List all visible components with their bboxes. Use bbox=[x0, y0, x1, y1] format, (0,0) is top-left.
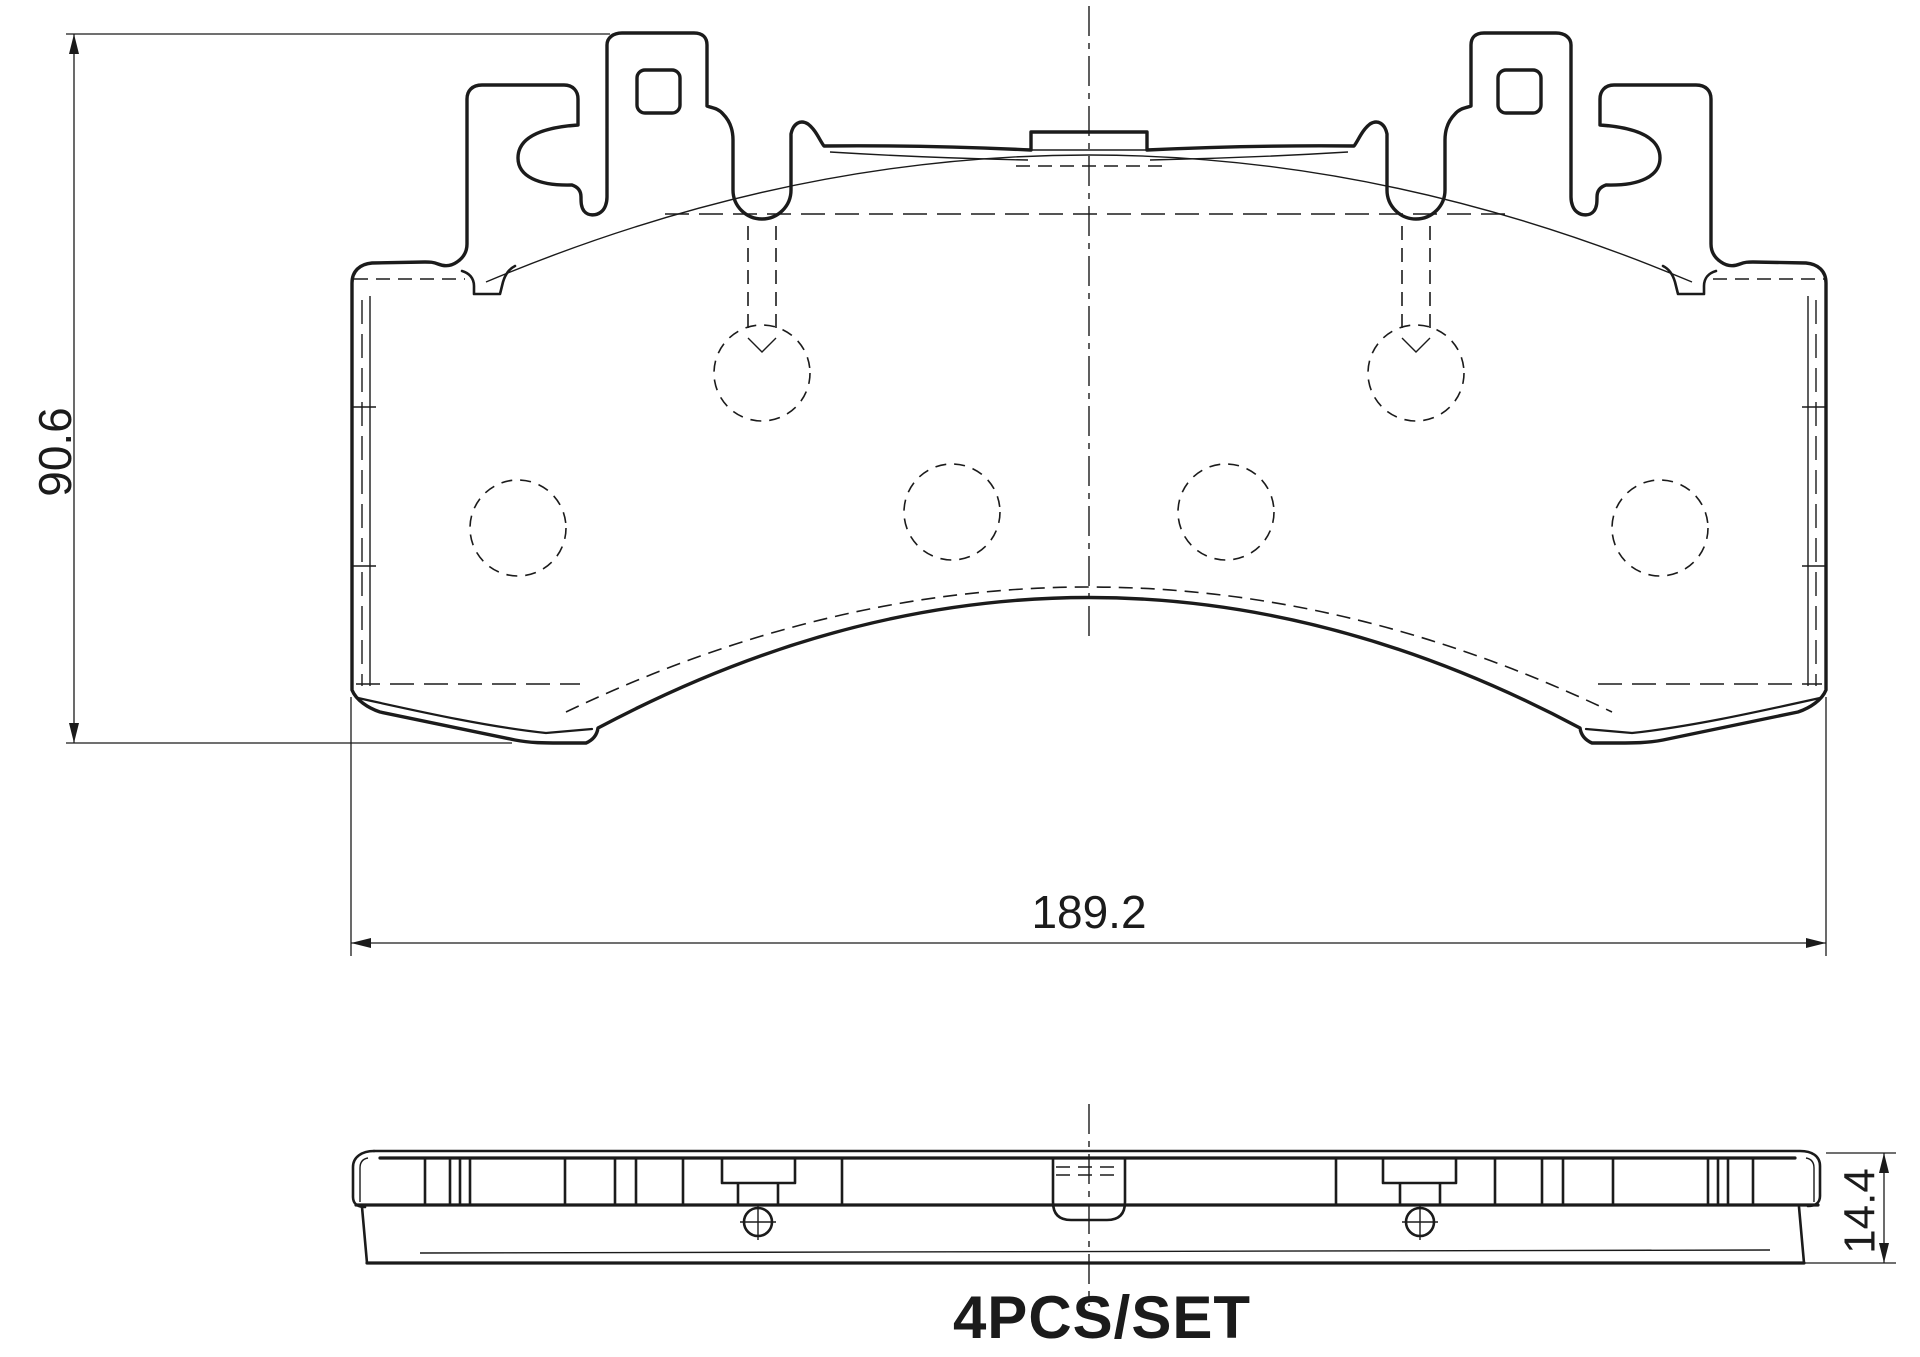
hole-outer-left bbox=[470, 480, 566, 576]
rivet-pin-right bbox=[1402, 226, 1430, 336]
hole-inner-right bbox=[1178, 464, 1274, 560]
hook-lug-left bbox=[462, 266, 515, 294]
rivet-chevron-right bbox=[1402, 338, 1430, 352]
height-arrow-top bbox=[69, 34, 79, 54]
rivet-chevron-left bbox=[748, 338, 776, 352]
left-edge-inner-line bbox=[352, 296, 376, 686]
chamfer-arc-left bbox=[830, 152, 1028, 160]
square-hole-left bbox=[637, 70, 680, 113]
dimension-width: 189.2 bbox=[351, 697, 1826, 956]
right-edge-inner-line bbox=[1802, 296, 1826, 686]
width-arrow-left bbox=[351, 938, 371, 948]
set-quantity-label: 4PCS/SET bbox=[953, 1284, 1251, 1351]
dimension-thickness: 14.4 bbox=[1798, 1153, 1896, 1263]
bv-curl-inner-left bbox=[360, 1158, 368, 1202]
pad-outline bbox=[352, 33, 1826, 743]
dimension-height: 90.6 bbox=[29, 34, 610, 743]
technical-drawing: 90.6 189.2 14.4 4PCS/SET bbox=[0, 0, 1920, 1357]
width-dimension-label: 189.2 bbox=[1031, 886, 1146, 938]
rivet-hole-left bbox=[714, 325, 810, 421]
hole-outer-right bbox=[1612, 480, 1708, 576]
hidden-bottom-arc bbox=[566, 587, 1612, 712]
bottom-view bbox=[353, 1151, 1820, 1263]
bv-slot-right bbox=[1383, 1158, 1456, 1205]
height-arrow-bottom bbox=[69, 723, 79, 743]
bv-rivet-left-cross bbox=[740, 1204, 776, 1240]
bv-friction-side-right bbox=[1799, 1207, 1804, 1263]
bv-friction-side-left bbox=[362, 1207, 367, 1263]
height-dimension-label: 90.6 bbox=[29, 407, 81, 497]
hook-lug-right bbox=[1663, 266, 1716, 294]
width-arrow-right bbox=[1806, 938, 1826, 948]
front-view bbox=[352, 33, 1826, 743]
rivet-pin-left bbox=[748, 226, 776, 336]
bv-friction-thin-line bbox=[420, 1250, 1770, 1253]
hole-inner-left bbox=[904, 464, 1000, 560]
bv-rivet-right-cross bbox=[1402, 1204, 1438, 1240]
thickness-dimension-label: 14.4 bbox=[1836, 1168, 1885, 1254]
drawing-canvas: 90.6 189.2 14.4 4PCS/SET bbox=[0, 0, 1920, 1357]
bv-slot-left bbox=[722, 1158, 795, 1205]
chamfer-arc-right bbox=[1150, 152, 1348, 160]
rivet-hole-right bbox=[1368, 325, 1464, 421]
square-hole-right bbox=[1498, 70, 1541, 113]
bv-curl-inner-right bbox=[1806, 1158, 1814, 1202]
